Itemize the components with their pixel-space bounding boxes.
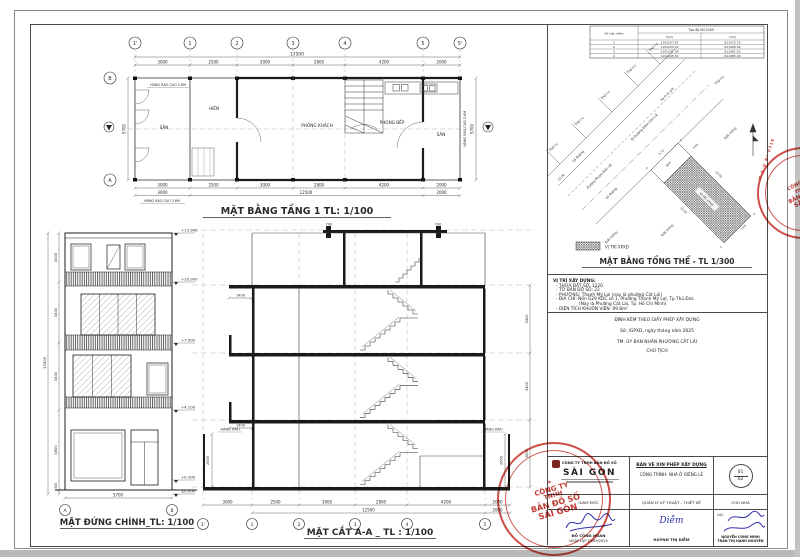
dim-label: 3000: [157, 190, 168, 195]
drawing-type: BẢN VẼ XIN PHÉP XÂY DỰNG: [630, 463, 713, 468]
dim-label: 3000: [260, 60, 271, 65]
elevation-grid-bubbles: [60, 505, 178, 516]
dim-label: 2000: [436, 190, 447, 195]
room-label: SÂN: [437, 132, 446, 137]
permit-line: TM. ỦY BAN NHÂN PHƯỜNG CÁT LÁI: [553, 340, 761, 345]
site-title: MẶT BẰNG TỔNG THỂ - TL 1/300: [599, 256, 734, 266]
role-tech: QUẢN LÝ KỸ THUẬT - THIẾT KẾ: [629, 494, 713, 509]
sheet-number: 01: [734, 470, 748, 477]
dim-label: 5700: [470, 123, 475, 134]
panel-divider: [548, 312, 767, 313]
dim-label: 3800: [53, 445, 58, 455]
section-structure: [203, 226, 510, 491]
section-dim-lines: [202, 284, 532, 515]
permit-line: Số: /GPXD, ngày tháng năm 2025: [553, 329, 761, 334]
lot-label: Thổ cư: [547, 141, 560, 154]
dim-label: 4200: [379, 60, 390, 65]
dim-label: 17500: [290, 52, 304, 58]
coordinate-table: Số hiệu điểm Tọa độ VN 2000 X(m) Y(m) 1 …: [590, 26, 764, 58]
table-header: Y(m): [729, 35, 736, 39]
company-round-stamp: ★ CÔNG TY TNHH BẢN ĐỒ SỐ SÀI GÒN: [497, 442, 611, 556]
dim-label: 700: [326, 223, 333, 227]
dim-label: 2800: [314, 183, 325, 188]
dim-label: 3400: [53, 371, 58, 381]
dim-label: 3.05: [692, 142, 699, 149]
table-header: X(m): [666, 35, 673, 39]
drawing-type-cell: BẢN VẼ XIN PHÉP XÂY DỰNG CÔNG TRÌNH: NHÀ…: [629, 457, 713, 494]
permit-line: ĐÍNH KÈM THEO GIẤY PHÉP XÂY DỰNG: [553, 318, 761, 323]
grid-label: 1: [251, 522, 254, 528]
dim-label: 3000: [222, 500, 233, 505]
table-cell: 1191241.39: [660, 50, 678, 54]
dim-label: 5700: [113, 493, 124, 498]
role-owner: CHỦ NHÀ: [713, 494, 767, 509]
dim-label: 3400: [525, 314, 529, 324]
floor-plan-title: MẶT BẰNG TẦNG 1 TL: 1/100: [221, 204, 374, 217]
corner-label: 2: [646, 166, 648, 170]
lot-label: Thổ cư: [713, 74, 726, 87]
dim-label: 2600: [206, 456, 210, 465]
dim-label: 12500: [362, 508, 375, 513]
corner-label: 1: [680, 138, 682, 142]
floor-plan-dimensions-bottom: [134, 187, 462, 198]
dim-label: 12.50: [714, 170, 723, 179]
street-label: Đường Phạm Đôn Lễ: [585, 162, 612, 189]
lot-label: Thổ cư: [573, 115, 586, 128]
panel-divider: [548, 274, 767, 275]
project-name: CÔNG TRÌNH: NHÀ Ở RIÊNG LẺ: [630, 472, 713, 477]
elevation-title: MẶT ĐỨNG CHÍNH_TL: 1/100: [60, 516, 194, 528]
table-cell: 3: [613, 50, 615, 54]
fence-label: HÀNG RÀO CAO 2.6M: [462, 111, 467, 147]
sheet-total: 02: [738, 477, 744, 482]
lot-label: Thổ cư: [625, 63, 638, 76]
elevation-left-dims: [47, 232, 61, 496]
site-plan-drawing: Số hiệu điểm Tọa độ VN 2000 X(m) Y(m) 1 …: [548, 24, 766, 274]
dim-label: 4200: [441, 500, 452, 505]
dim-label: 2800: [376, 500, 387, 505]
sheet-number-circle: 01 02: [729, 464, 753, 488]
table-cell: 611068.82: [724, 45, 740, 49]
signature-stroke: [722, 511, 766, 535]
dim-label: 3000: [260, 183, 271, 188]
grid-label: 2: [298, 522, 301, 528]
table-cell: 1191253.43: [660, 45, 678, 49]
north-arrow-icon: [750, 124, 758, 156]
table-cell: 611072.75: [724, 41, 740, 45]
dim-label: 3400: [53, 307, 58, 317]
street-label: Lề đường: [604, 186, 618, 200]
grid-label: 3: [291, 41, 294, 47]
dim-label: 2000: [436, 60, 447, 65]
lot-label: Đất trống: [660, 223, 674, 237]
street-label: Ranh lộ giới: [660, 87, 675, 102]
table-cell: 1: [613, 41, 615, 45]
room-label: PHÒNG BẾP: [380, 119, 405, 125]
site-legend: VỊ TRÍ XPXD: [576, 242, 629, 250]
grid-label: 5: [484, 522, 487, 528]
fence-label: HÀNG RÀO: [483, 427, 503, 432]
table-header: Số hiệu điểm: [605, 31, 624, 36]
dim-label: 4200: [379, 183, 390, 188]
grid-label: 1: [188, 41, 191, 47]
grid-label: A: [63, 508, 67, 514]
grid-label: B: [108, 76, 112, 82]
lot-label: Đất trống: [723, 126, 737, 140]
table-cell: 4: [613, 54, 615, 58]
lot-label: Đất trống: [604, 230, 618, 244]
legend-label: VỊ TRÍ XPXD: [605, 245, 629, 250]
elevation-body: [55, 233, 197, 490]
room-label: HIÊN: [209, 106, 219, 111]
stair-plan: [345, 80, 383, 133]
tech-name: HUỲNH THỊ DIỄM: [630, 537, 713, 542]
fence-label: HÀNG RÀO: [220, 427, 240, 432]
dim-label: 300: [54, 483, 58, 489]
room-label: PHÒNG KHÁCH: [301, 123, 332, 128]
table-cell: 611081.52: [724, 50, 740, 54]
fence-label: HÀNG RÀO CAO 2.6M: [144, 198, 180, 203]
grid-label: 4: [343, 41, 346, 47]
grid-label: 2: [235, 41, 238, 47]
dim-label: 1400: [236, 294, 245, 298]
grid-label: B: [170, 508, 173, 514]
sheet-number-cell: 01 02: [713, 457, 767, 494]
dim-label: 2500: [208, 60, 219, 65]
lot-label: Sân: [665, 161, 672, 168]
dim-label: 3000: [53, 252, 58, 262]
dim-label: 2800: [314, 60, 325, 65]
grid-label: 5: [421, 41, 424, 47]
dim-label: 13.00: [557, 173, 566, 182]
section-title: MẶT CẮT A-A _ TL : 1/100: [307, 525, 434, 538]
permit-block: ĐÍNH KÈM THEO GIẤY PHÉP XÂY DỰNG Số: /GP…: [553, 318, 761, 354]
table-cell: 2: [613, 45, 615, 49]
dim-label: 3000: [322, 500, 333, 505]
section-stairs: [360, 258, 419, 485]
dim-label: 3000: [157, 60, 168, 65]
street-label: Đi Đường Đàm Văn Lễ: [629, 112, 658, 141]
dim-label: 12.50: [679, 206, 688, 215]
scan-edge-bottom: [0, 550, 800, 557]
table-cell: 1191257.67: [660, 41, 678, 45]
tech-signature-handwriting: Diễm: [630, 516, 713, 526]
lot-label: Thổ cư: [599, 89, 612, 102]
dim-label: 2500: [208, 183, 219, 188]
dim-label: 2500: [270, 500, 281, 505]
floor-plan-axes: [128, 78, 468, 180]
dim-label: 5700: [122, 123, 127, 134]
construction-info-block: VỊ TRÍ XÂY DỰNG: - THỬA ĐẤT SỐ: 1220 - T…: [553, 280, 761, 312]
table-header: Tọa độ VN 2000: [687, 28, 714, 32]
grid-label: 5': [458, 41, 463, 47]
drawing-sheet: 1' 1 2 3 4 5 5' B A 17500 3000 2500 3000…: [0, 0, 800, 557]
grid-label: 1': [201, 522, 205, 528]
floor-plan-drawing: 1' 1 2 3 4 5 5' B A 17500 3000 2500 3000…: [40, 30, 510, 222]
corner-label: 4: [753, 212, 755, 216]
dim-label: 2600: [500, 456, 504, 465]
signature-owner: UQ. NGUYỄN CÔNG MINH TRẦN THỊ HẠNH NGUYÊ…: [713, 509, 767, 546]
grid-label: 1': [133, 41, 138, 47]
dim-label: 3400: [525, 381, 529, 391]
fence-label: HÀNG RÀO CAO 2.6M: [150, 82, 186, 87]
section-drawing: 700 700 1400 1400 2600 2600 3400 3400 38…: [190, 222, 550, 552]
owner-name-2: TRẦN THỊ HẠNH NGUYÊN: [714, 540, 767, 544]
corner-label: 3: [720, 245, 722, 249]
dim-label: 3000: [157, 183, 168, 188]
signature-tech: Diễm HUỲNH THỊ DIỄM: [629, 509, 713, 546]
scan-edge-right: [795, 0, 800, 557]
dim-label: 2000: [436, 183, 447, 188]
dim-label: 5.70: [658, 148, 665, 155]
dim-label: 12500: [300, 190, 313, 195]
permit-line: CHỦ TỊCH: [553, 349, 761, 354]
dim-label: 700: [435, 223, 442, 227]
grid-label: A: [108, 178, 112, 184]
kitchen-counter: [385, 82, 458, 94]
table-cell: 611085.44: [724, 54, 740, 58]
dim-label: 13900: [42, 356, 47, 369]
room-label: SÂN: [160, 125, 169, 130]
